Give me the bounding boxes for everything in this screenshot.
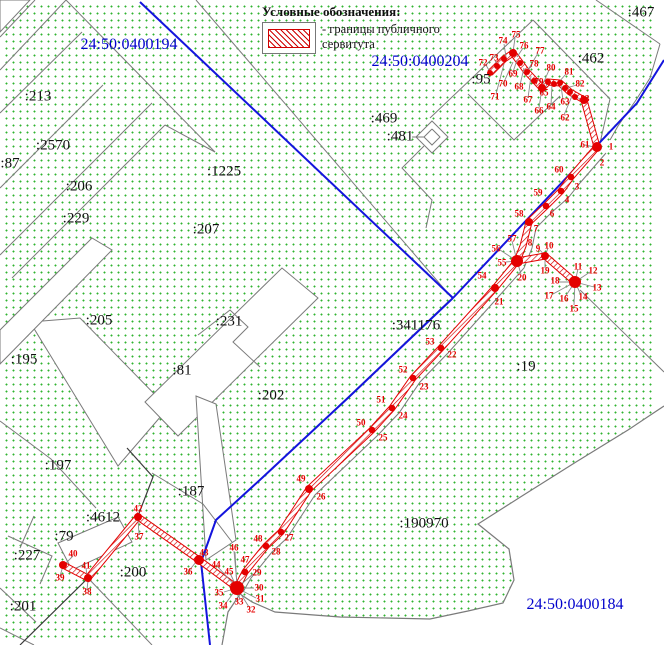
servitude-point-label: 61 — [581, 141, 590, 150]
servitude-point-label: 26 — [317, 493, 326, 502]
vertex-dot — [509, 49, 517, 57]
parcel-number-label: :190970 — [399, 517, 448, 532]
servitude-point-label: 19 — [541, 267, 550, 276]
road-area — [196, 396, 236, 560]
servitude-point-label: 34 — [219, 602, 228, 611]
servitude-point-label: 54 — [478, 272, 487, 281]
servitude-point-label: 11 — [574, 263, 583, 272]
vertex-dot — [525, 218, 533, 226]
servitude-point-label: 62 — [561, 114, 570, 123]
parcel-number-label: :4612 — [86, 511, 120, 526]
servitude-point-label: 41 — [82, 562, 91, 571]
quarter-number-label: 24:50:0400204 — [372, 54, 469, 70]
servitude-point-label: 28 — [272, 548, 281, 557]
vertex-dot — [59, 561, 67, 569]
servitude-point-label: 66 — [535, 107, 544, 116]
servitude-point-label: 59 — [534, 189, 543, 198]
servitude-point-label: 40 — [69, 550, 78, 559]
servitude-point-label: 45 — [225, 568, 234, 577]
servitude-point-label: 57 — [508, 235, 517, 244]
vertex-dot — [230, 581, 244, 595]
servitude-point-label: 52 — [399, 366, 408, 375]
parcel-line — [165, 125, 215, 152]
servitude-point-label: 23 — [420, 383, 429, 392]
parcel-number-label: :202 — [258, 389, 285, 404]
vertex-dot — [501, 56, 507, 62]
servitude-point-label: 77 — [536, 47, 545, 56]
servitude-point-label: 33 — [235, 598, 244, 607]
servitude-point-label: 21 — [495, 298, 504, 307]
servitude-point-label: 53 — [426, 338, 435, 347]
servitude-point-label: 80 — [547, 64, 556, 73]
vertex-dot — [494, 63, 500, 69]
servitude-point-label: 82 — [576, 80, 585, 89]
vertex-dot — [567, 89, 573, 95]
servitude-point-label: 37 — [135, 533, 144, 542]
vertex-dot — [242, 569, 249, 576]
parcel-number-label: :197 — [45, 459, 72, 474]
parcel-number-label: :79 — [54, 530, 73, 545]
legend: Условные обозначения: - границы публично… — [262, 5, 477, 54]
servitude-point-label: 58 — [515, 210, 524, 219]
vertex-dot — [511, 255, 523, 267]
vertex-dot — [410, 375, 417, 382]
servitude-point-label: 42 — [134, 505, 143, 514]
cadastral-map: Условные обозначения: - границы публично… — [0, 0, 664, 645]
servitude-point-label: 63 — [561, 98, 570, 107]
servitude-point-label: 1 — [609, 143, 614, 152]
vertex-dot — [562, 85, 568, 91]
parcel-number-label: :87 — [0, 157, 19, 172]
servitude-point-label: 69 — [509, 70, 518, 79]
vertex-dot — [134, 513, 142, 521]
parcel-number-label: :231 — [216, 315, 243, 330]
servitude-point-label: 78 — [530, 60, 539, 69]
legend-title: Условные обозначения: — [262, 5, 477, 19]
vertex-dot — [568, 174, 575, 181]
parcel-number-label: :227 — [14, 549, 41, 564]
parcel-number-label: :195 — [11, 353, 38, 368]
vertex-dot — [558, 188, 565, 195]
vertex-dot — [263, 543, 270, 550]
legend-row: - границы публичного сервитута — [262, 22, 477, 54]
vertex-dot — [572, 94, 578, 100]
servitude-hatch-icon — [268, 29, 310, 48]
servitude-point-label: 51 — [377, 396, 386, 405]
servitude-point-label: 15 — [570, 305, 579, 314]
servitude-point-label: 31 — [256, 595, 265, 604]
servitude-point-label: 16 — [560, 295, 569, 304]
parcel-number-label: :341176 — [392, 319, 441, 334]
vertex-dot — [517, 60, 523, 66]
servitude-point-label: 44 — [212, 561, 221, 570]
servitude-point-label: 64 — [547, 103, 556, 112]
servitude-point-label: 32 — [247, 606, 256, 615]
servitude-point-label: 7 — [534, 225, 539, 234]
servitude-point-label: 47 — [241, 556, 250, 565]
servitude-point-label: 49 — [297, 475, 306, 484]
servitude-swatch — [262, 22, 316, 54]
parcel-number-label: :207 — [193, 223, 220, 238]
vertex-dot — [389, 405, 396, 412]
servitude-point-label: 72 — [479, 59, 488, 68]
servitude-point-label: 36 — [184, 568, 193, 577]
servitude-point-label: 20 — [518, 274, 527, 283]
servitude-point-label: 18 — [551, 277, 560, 286]
servitude-point-label: 24 — [399, 412, 408, 421]
road-area — [0, 0, 30, 32]
parcel-number-label: :81 — [172, 364, 191, 379]
parcel-number-label: :213 — [25, 90, 52, 105]
servitude-point-label: 73 — [490, 54, 499, 63]
vertex-dot — [524, 69, 530, 75]
parcel-number-label: :469 — [371, 112, 398, 127]
servitude-point-label: 79 — [535, 78, 544, 87]
parcel-number-label: :462 — [578, 52, 605, 67]
road-area — [30, 318, 168, 466]
servitude-point-label: 55 — [498, 259, 507, 268]
servitude-point-label: 17 — [545, 292, 554, 301]
servitude-point-label: 25 — [379, 434, 388, 443]
parcel-line — [88, 578, 152, 645]
vertex-dot — [278, 529, 285, 536]
parcel-number-label: :2570 — [36, 139, 70, 154]
vertex-dot — [305, 485, 313, 493]
servitude-point-label: 70 — [499, 80, 508, 89]
quarter-boundary-line — [453, 60, 664, 298]
parcel-line — [402, 146, 432, 228]
parcel-number-label: :200 — [120, 566, 147, 581]
servitude-point-label: 35 — [215, 589, 224, 598]
servitude-point-label: 81 — [565, 68, 574, 77]
servitude-point-label: 30 — [255, 584, 264, 593]
parcel-line — [610, 44, 660, 140]
servitude-point-label: 4 — [565, 196, 570, 205]
servitude-point-label: 46 — [230, 544, 239, 553]
vertex-dot — [84, 574, 92, 582]
servitude-point-label: 2 — [600, 159, 605, 168]
vertex-dot — [541, 252, 549, 260]
servitude-point-label: 56 — [492, 245, 501, 254]
servitude-point-label: 43 — [200, 549, 209, 558]
servitude-point-label: 6 — [550, 210, 555, 219]
parcel-number-label: :481 — [387, 130, 414, 145]
servitude-point-label: 75 — [512, 31, 521, 40]
servitude-point-label: 71 — [491, 93, 500, 102]
servitude-point-label: 65 — [540, 89, 549, 98]
servitude-point-label: 14 — [579, 293, 588, 302]
vertex-dot — [592, 142, 602, 152]
parcel-number-label: :206 — [66, 180, 93, 195]
servitude-point-label: 29 — [253, 569, 262, 578]
parcel-number-label: :95 — [471, 73, 490, 88]
servitude-point-label: 67 — [524, 96, 533, 105]
vertex-dot — [543, 203, 550, 210]
road-area — [145, 268, 318, 436]
parcel-number-label: :19 — [516, 360, 535, 375]
parcel-line — [580, 290, 664, 372]
vertex-dot — [557, 80, 563, 86]
vertex-dot — [551, 81, 557, 87]
vertex-dot — [438, 345, 445, 352]
servitude-point-label: 10 — [545, 242, 554, 251]
parcel-number-label: :1225 — [207, 165, 241, 180]
parcel-line — [66, 0, 215, 152]
servitude-point-label: 68 — [515, 83, 524, 92]
parcel-line — [0, 85, 103, 188]
servitude-point-label: 8 — [528, 239, 533, 248]
legend-label: - границы публичного сервитута — [322, 22, 440, 54]
servitude-point-label: 83 — [581, 95, 590, 104]
quarter-number-label: 24:50:0400184 — [527, 597, 624, 613]
quarter-number-label: 24:50:0400194 — [81, 37, 178, 53]
servitude-point-label: 27 — [285, 534, 294, 543]
parcel-line — [20, 516, 34, 548]
servitude-point-label: 13 — [593, 284, 602, 293]
servitude-point-label: 76 — [520, 42, 529, 51]
servitude-point-label: 60 — [555, 166, 564, 175]
parcel-number-label: :201 — [10, 600, 37, 615]
servitude-point-label: 48 — [254, 535, 263, 544]
servitude-point-label: 12 — [589, 267, 598, 276]
servitude-point-label: 39 — [56, 574, 65, 583]
vertex-dot — [491, 284, 499, 292]
servitude-point-label: 9 — [536, 245, 541, 254]
vertex-dot — [545, 79, 551, 85]
parcel-number-label: :205 — [86, 314, 113, 329]
parcel-number-label: :229 — [63, 212, 90, 227]
parcel-number-label: :187 — [178, 485, 205, 500]
parcel-number-label: :467 — [628, 6, 655, 21]
vertex-dot — [369, 427, 376, 434]
servitude-point-label: 22 — [448, 351, 457, 360]
servitude-point-label: 74 — [499, 37, 508, 46]
servitude-point-label: 50 — [357, 419, 366, 428]
servitude-point-label: 3 — [575, 183, 580, 192]
servitude-point-label: 38 — [83, 588, 92, 597]
vertex-dot — [569, 276, 581, 288]
